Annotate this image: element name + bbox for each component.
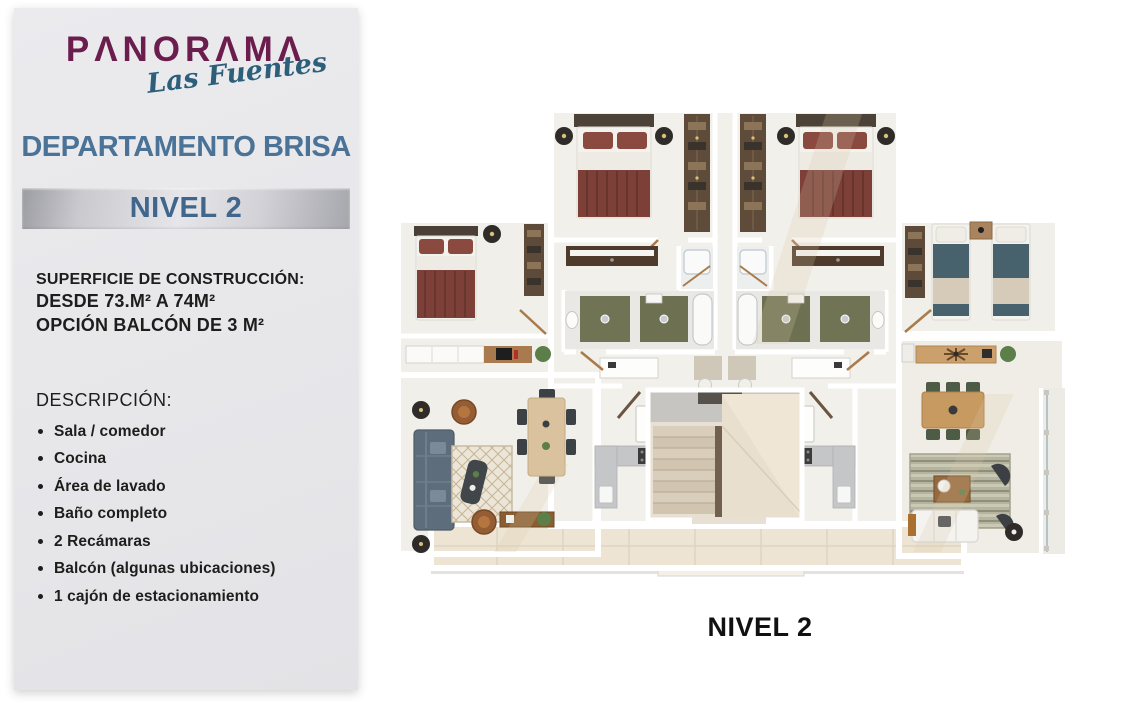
description-item: 1 cajón de estacionamiento xyxy=(36,588,358,606)
level-banner: NIVEL 2 xyxy=(22,188,350,229)
bathtub xyxy=(693,294,712,345)
brand-logo: PΛNORΛMΛ Las Fuentes xyxy=(14,8,358,97)
floor-plan xyxy=(396,94,1110,598)
description-item: 2 Recámaras xyxy=(36,533,358,551)
description-block: DESCRIPCIÓN: Sala / comedorCocinaÁrea de… xyxy=(36,390,358,606)
description-heading: DESCRIPCIÓN: xyxy=(36,390,358,411)
vanity xyxy=(566,246,658,266)
surface-block: SUPERFICIE DE CONSTRUCCIÓN: DESDE 73.M² … xyxy=(36,269,358,338)
stair-divider xyxy=(715,426,722,520)
description-list: Sala / comedorCocinaÁrea de lavadoBaño c… xyxy=(36,423,358,606)
description-item: Baño completo xyxy=(36,505,358,523)
twin-bed-1 xyxy=(932,224,970,320)
description-item: Sala / comedor xyxy=(36,423,358,441)
level-banner-label: NIVEL 2 xyxy=(130,192,243,224)
flyer-page: { "brand": { "name": "PANORAMA", "name_d… xyxy=(0,0,1134,709)
info-panel: PΛNORΛMΛ Las Fuentes DEPARTAMENTO BRISA … xyxy=(14,8,358,690)
plant xyxy=(535,346,551,362)
stairwell xyxy=(648,390,802,524)
description-item: Balcón (algunas ubicaciones) xyxy=(36,560,358,578)
surface-line1: DESDE 73.M² A 74M² xyxy=(36,290,358,314)
tv-console xyxy=(406,346,551,363)
plan-caption: NIVEL 2 xyxy=(640,612,880,643)
description-item: Cocina xyxy=(36,450,358,468)
twin-bed-2 xyxy=(992,224,1030,320)
bathroom xyxy=(565,291,714,349)
apartment-title: DEPARTAMENTO BRISA xyxy=(14,131,358,164)
description-item: Área de lavado xyxy=(36,478,358,496)
surface-line2: OPCIÓN BALCÓN DE 3 M² xyxy=(36,314,358,338)
floor-plan-render xyxy=(396,94,1110,598)
stair-treads xyxy=(653,426,715,514)
sofa xyxy=(414,430,454,530)
plant xyxy=(1000,346,1016,362)
shower-cabin xyxy=(681,247,713,289)
surface-heading: SUPERFICIE DE CONSTRUCCIÓN: xyxy=(36,269,358,290)
balcony xyxy=(1041,388,1065,554)
wardrobe xyxy=(684,114,710,232)
